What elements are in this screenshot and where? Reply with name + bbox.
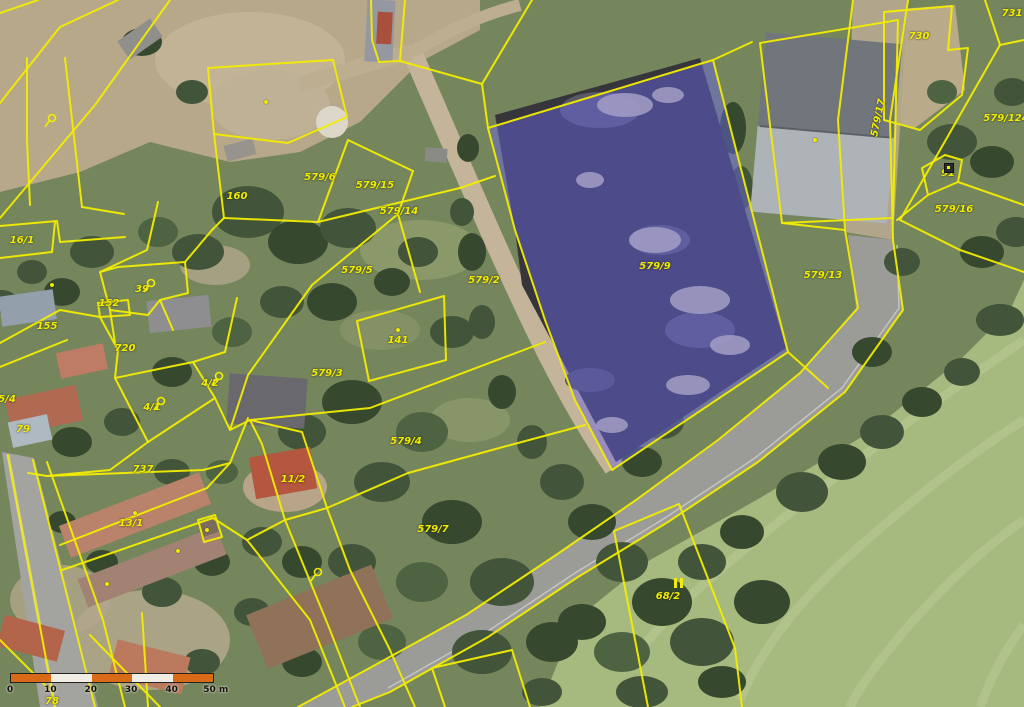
parcel-label: 730 xyxy=(909,32,930,42)
parcel-label: 152 xyxy=(99,299,120,309)
parcel-label: 579/124 xyxy=(983,114,1024,124)
parcel-point-marker xyxy=(176,549,180,553)
parcel-point-marker xyxy=(133,511,137,515)
parcel-label: 579/2 xyxy=(468,276,499,286)
parcel-label: 579/14 xyxy=(380,207,418,217)
parcel-label: 579/4 xyxy=(390,437,421,447)
aerial-map-view[interactable]: 16016/1391521557205/44/24/17973713/17857… xyxy=(0,0,1024,707)
scale-bar-segment xyxy=(51,674,91,682)
parcel-label: 579/15 xyxy=(356,181,394,191)
scale-bar-segment xyxy=(173,674,213,682)
parcel-label: 155 xyxy=(37,322,58,332)
parcel-label: 11/2 xyxy=(281,475,306,485)
selected-parcel-label: 579/9 xyxy=(639,262,670,272)
parcel-point-marker xyxy=(105,582,109,586)
parcel-label: 579/5 xyxy=(341,266,372,276)
parcel-labels-layer: 16016/1391521557205/44/24/17973713/17857… xyxy=(0,0,1024,707)
parcel-label: 68/2 xyxy=(656,592,681,602)
parcel-point-marker xyxy=(264,100,268,104)
parcel-label: 737 xyxy=(133,465,154,475)
parcel-label: 141 xyxy=(388,336,409,346)
parcel-label: 731 xyxy=(1002,9,1023,19)
parcel-label: 579/6 xyxy=(304,173,335,183)
scale-label: 50 m xyxy=(203,685,228,695)
scale-bar-segment xyxy=(11,674,51,682)
scale-label: 20 xyxy=(85,685,98,695)
scale-bar-segment xyxy=(92,674,132,682)
parcel-label: 79 xyxy=(16,425,30,435)
parcel-point-marker xyxy=(396,328,400,332)
parcel-label: 5/4 xyxy=(0,395,16,405)
parcel-label: 13/1 xyxy=(119,519,144,529)
parcel-label: 16/1 xyxy=(10,236,35,246)
parcel-point-marker xyxy=(205,528,209,532)
scale-label: 0 xyxy=(7,685,13,695)
parcel-label: 579/3 xyxy=(311,369,342,379)
parcel-label: 579/17 xyxy=(870,98,888,138)
scale-bar-segment xyxy=(132,674,172,682)
scale-bar: 01020304050 m xyxy=(10,673,220,701)
scale-bar-segments xyxy=(10,673,214,683)
parcel-label: 579/16 xyxy=(935,205,973,215)
scale-label: 10 xyxy=(44,685,57,695)
parcel-label: 579/7 xyxy=(417,525,448,535)
scale-label: 40 xyxy=(165,685,178,695)
scale-label: 30 xyxy=(125,685,138,695)
parcel-label: 160 xyxy=(227,192,248,202)
parcel-label: 579/13 xyxy=(804,271,842,281)
parcel-point-marker xyxy=(50,283,54,287)
parcel-point-marker xyxy=(813,138,817,142)
parcel-label: 720 xyxy=(115,344,136,354)
